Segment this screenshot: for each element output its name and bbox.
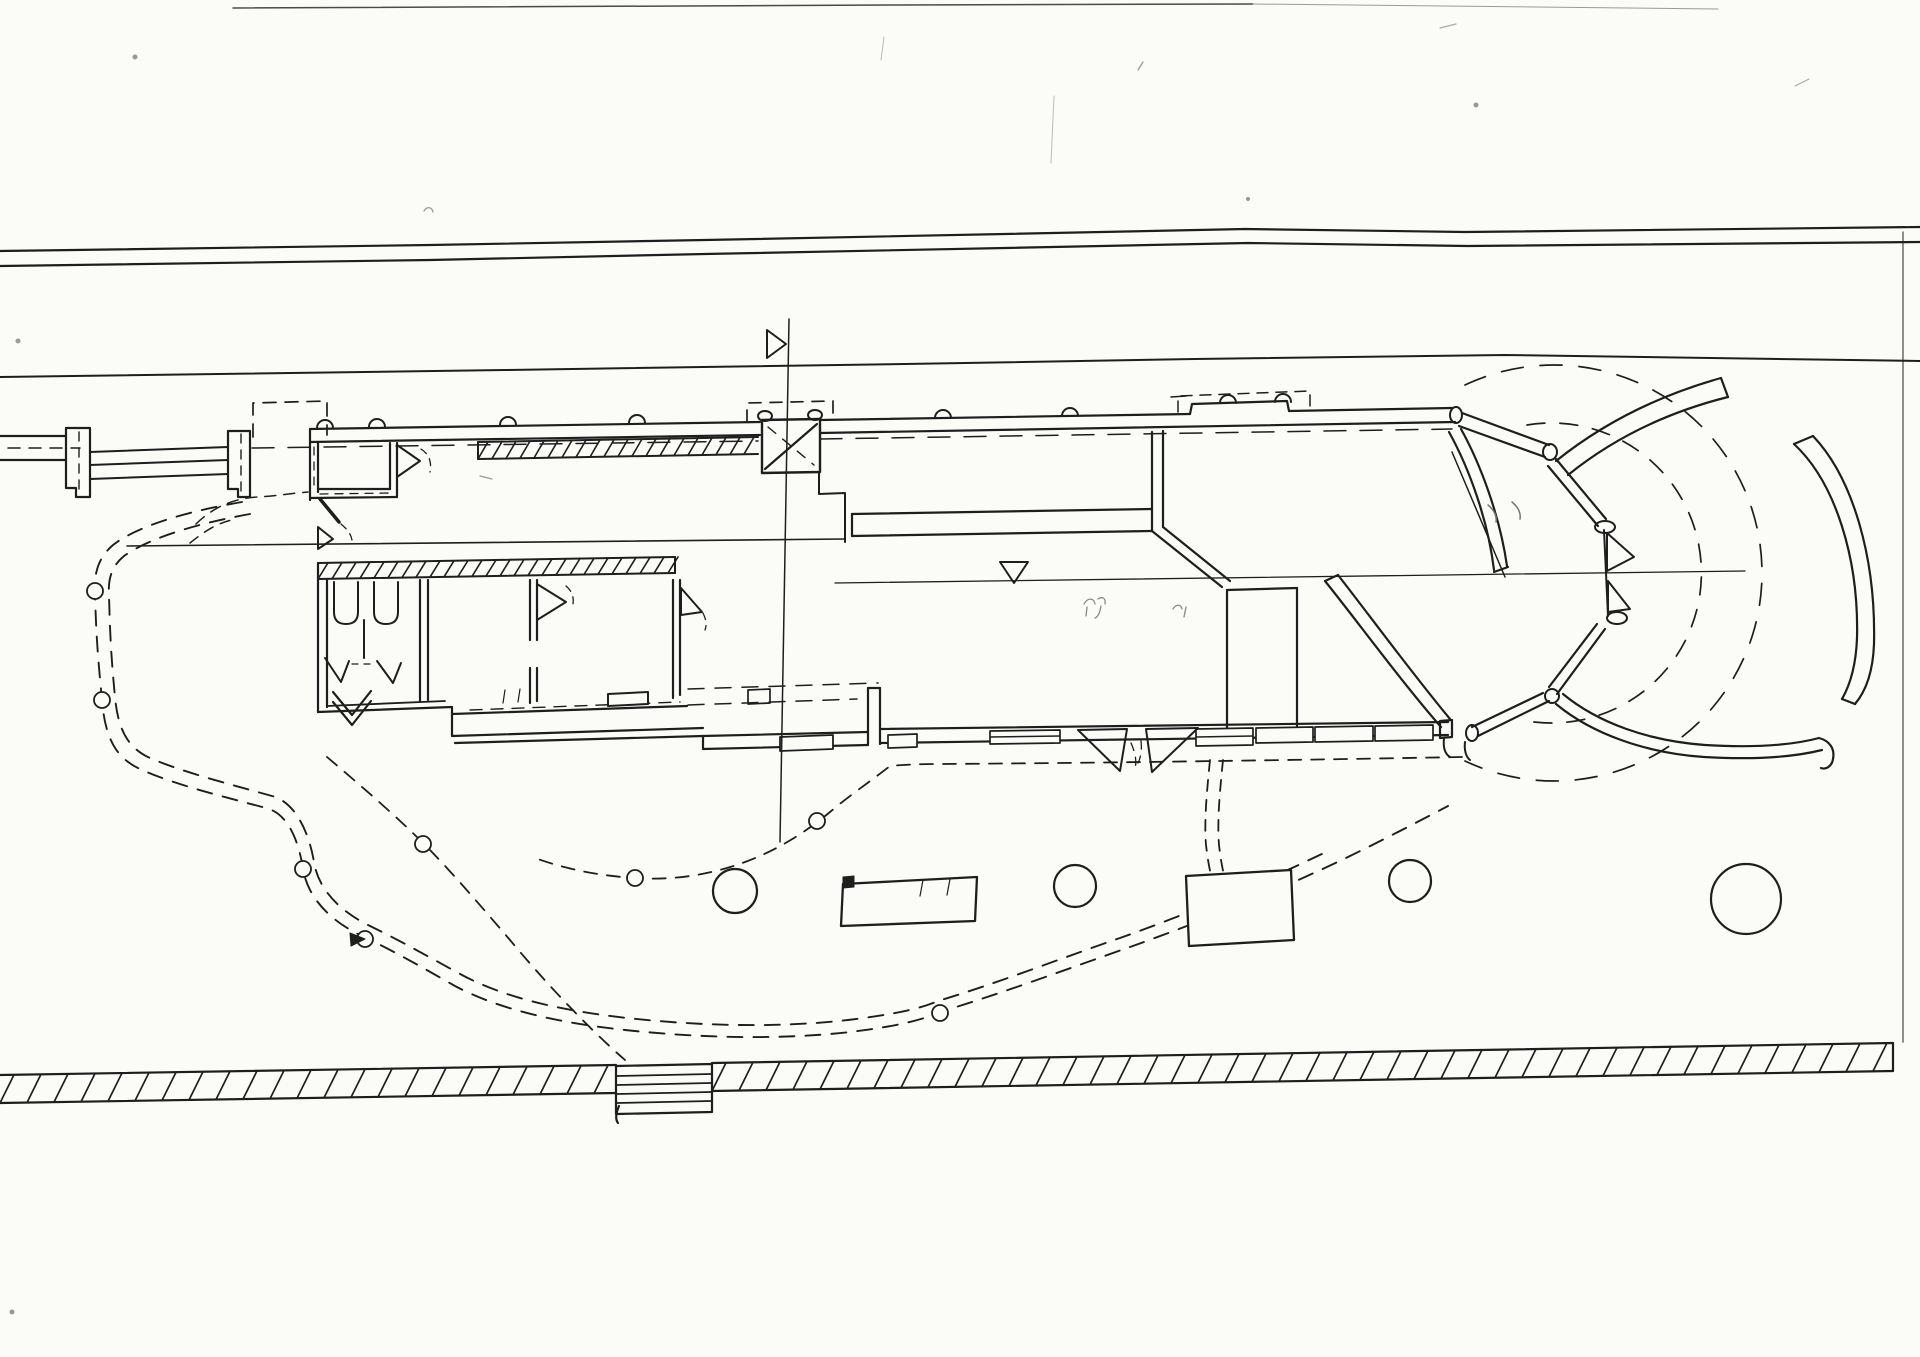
section-line [780,319,789,842]
scan-speck-9 [1795,79,1809,86]
apse-wall-ne-outer [1556,459,1606,519]
south-door-swing-1 [1078,729,1127,771]
path-node-6 [627,870,643,886]
street-wall-bottom-east [712,1071,1893,1091]
apse-sketch-mark-2 [1512,502,1520,519]
pencil-scribble-1 [1084,598,1105,618]
scan-speck-11 [480,476,492,479]
buttress-e-cap-top [1794,436,1813,444]
room2-door-swing [537,584,566,620]
wall-column-bump-2 [369,419,385,427]
north-wall-top-west [310,422,760,429]
north-wall-top-right [1289,408,1452,411]
nave-diagonal-wall-2 [1163,527,1230,581]
courtyard-marker-box [748,689,770,704]
path-node-1 [87,583,103,599]
site-path-apse-walk [535,757,1462,879]
pencil-scribble-2 [1173,605,1186,617]
scan-speck-3 [1474,103,1478,107]
apse-wall-se-outer [1557,629,1605,694]
planter-1 [841,877,977,926]
tree-2 [1054,865,1096,907]
courtyard-dash-lower [688,699,857,705]
scan-edge-top [233,4,1253,8]
wc-fixture-2 [374,582,398,624]
boundary-pillar [66,428,90,497]
apse-sketch-mark-1 [1488,505,1496,522]
entry-leaf-dash [341,524,352,540]
scan-speck-2 [1138,62,1143,70]
buttress-ne-outer [1556,378,1721,461]
south-door-dash-1 [1131,743,1136,769]
buttress-sw-inner [1338,575,1450,719]
road-lower-edge [0,355,1920,377]
nave-north-inner-wall-2 [852,531,1152,536]
buttress-e-outer [1794,444,1857,699]
street-wall-hatch-east [712,1043,1887,1091]
terrace-plant-tick-1 [503,690,505,703]
north-wall-top-east [820,414,1190,420]
gate-pillar [228,431,250,497]
scan-edge-top-right [1253,4,1718,9]
street-stairs-outline [616,1064,712,1114]
entry-door-leaf [320,499,339,522]
site-path-loop-outer [95,502,1448,1037]
wc-door-swing-1 [325,658,349,682]
scan-speck-6 [16,339,20,343]
scanned-site-plan-page [0,0,1920,1357]
fence-rail-1 [90,447,228,452]
wc-door-swing-2 [377,661,401,683]
wing-hatch-bottom [318,573,675,579]
south-door-dash-2 [1138,741,1141,763]
south-window-5 [1315,726,1373,742]
scan-speck-4 [881,37,884,60]
buttress-e-inner [1813,436,1874,704]
chapel-wall-top [1227,588,1297,590]
terrace-plant-tick-2 [518,689,520,702]
buttress-nw-outer [1449,432,1494,570]
fence-rail-2 [90,460,228,465]
wall-column-bump-5 [935,410,951,418]
apse-wall-n-outer [1462,413,1549,445]
room2-door-dash [566,586,573,604]
entry-dashed-box [253,401,327,437]
terrace-step-front-upper [452,714,703,736]
south-window-6 [1375,725,1433,741]
south-window-2-mid [990,736,1060,737]
garden-wall-s-inner [1563,694,1819,746]
south-window-1 [888,734,917,748]
wall-niche-outline [1190,401,1289,414]
site-path-loop-inner [109,514,1328,1025]
road-upper-outer-edge [0,227,1920,251]
buttress-nw-inner [1461,429,1507,566]
wall-column-bump-1 [317,420,333,428]
apse-door-triangle-up [1607,533,1634,571]
north-wall-bottom-east [820,422,1455,433]
wing-door-swing [681,588,702,615]
entry-leaf-triangle [318,527,333,549]
terrace-step-front-lower [455,736,703,743]
apse-cap-3 [1607,612,1627,624]
terrace-edge-upper [452,706,687,714]
wall-column-bump-4 [629,415,645,423]
path-node-8 [932,1005,948,1021]
south-window-4 [1256,727,1313,743]
scan-speck-1 [424,208,433,212]
south-window-3-mid [1196,736,1253,737]
north-wall-end-cap [1450,407,1462,423]
terrace-bench [608,692,648,706]
entry-door-dash [421,449,431,472]
tree-3 [1389,860,1431,902]
entry-wall-south-outer [310,497,397,498]
south-wall-end-hook [1444,738,1450,757]
buttress-ne-cap [1721,378,1728,397]
street-wall-top-east [712,1043,1893,1063]
low-wall-window [780,735,833,751]
buttress-nw-chord [1452,452,1505,577]
site-path-chapel-branch-2 [1218,760,1225,878]
path-node-5 [415,836,431,852]
low-wall-top [703,732,868,736]
scan-speck-5 [1051,96,1054,163]
section-flag [767,330,786,358]
apse-wall-ne-inner [1548,466,1598,526]
buttress-e-cap-bottom [1842,699,1855,704]
garden-wall-s-end [1819,738,1833,769]
wall-column-bump-3 [500,417,516,425]
scan-speck-12 [1247,198,1250,201]
scan-speck-8 [133,55,137,59]
planter-2 [1186,870,1294,946]
level-marker-triangle [1000,562,1028,583]
wc-fixture-1 [334,582,358,624]
scan-speck-10 [10,1310,14,1314]
fence-rail-3 [90,474,228,479]
tree-1 [713,869,757,913]
road-upper-inner-edge [0,242,1920,266]
site-path-chapel-branch [1205,760,1212,878]
courtyard-edge-line [127,539,845,546]
path-node-7 [809,813,825,829]
scan-speck-7 [1440,24,1456,28]
street-wall-bottom-west [0,1093,616,1103]
site-path-to-stairs [327,757,625,1060]
apse-cap-1 [1543,444,1557,460]
site-plan-drawing [0,0,1920,1357]
entry-wall-south-dash [320,493,392,494]
tree-4 [1711,864,1781,934]
apse-hook-s [1465,742,1470,760]
niche-tick [1171,396,1186,397]
wing-wall-south-inner [327,701,445,706]
planter-1-corner [843,876,854,888]
entry-door-swing [397,445,420,477]
wing-door-dash [703,613,706,630]
south-door-swing-2 [1146,728,1198,772]
path-node-2 [94,692,110,708]
apse-wall-se-inner [1549,624,1597,687]
buttress-sw-outer [1325,581,1441,727]
apse-door-triangle-down [1608,581,1630,612]
nave-north-inner-wall-1 [852,509,1152,514]
tower-stair-step [819,472,845,542]
path-node-3 [295,861,311,877]
